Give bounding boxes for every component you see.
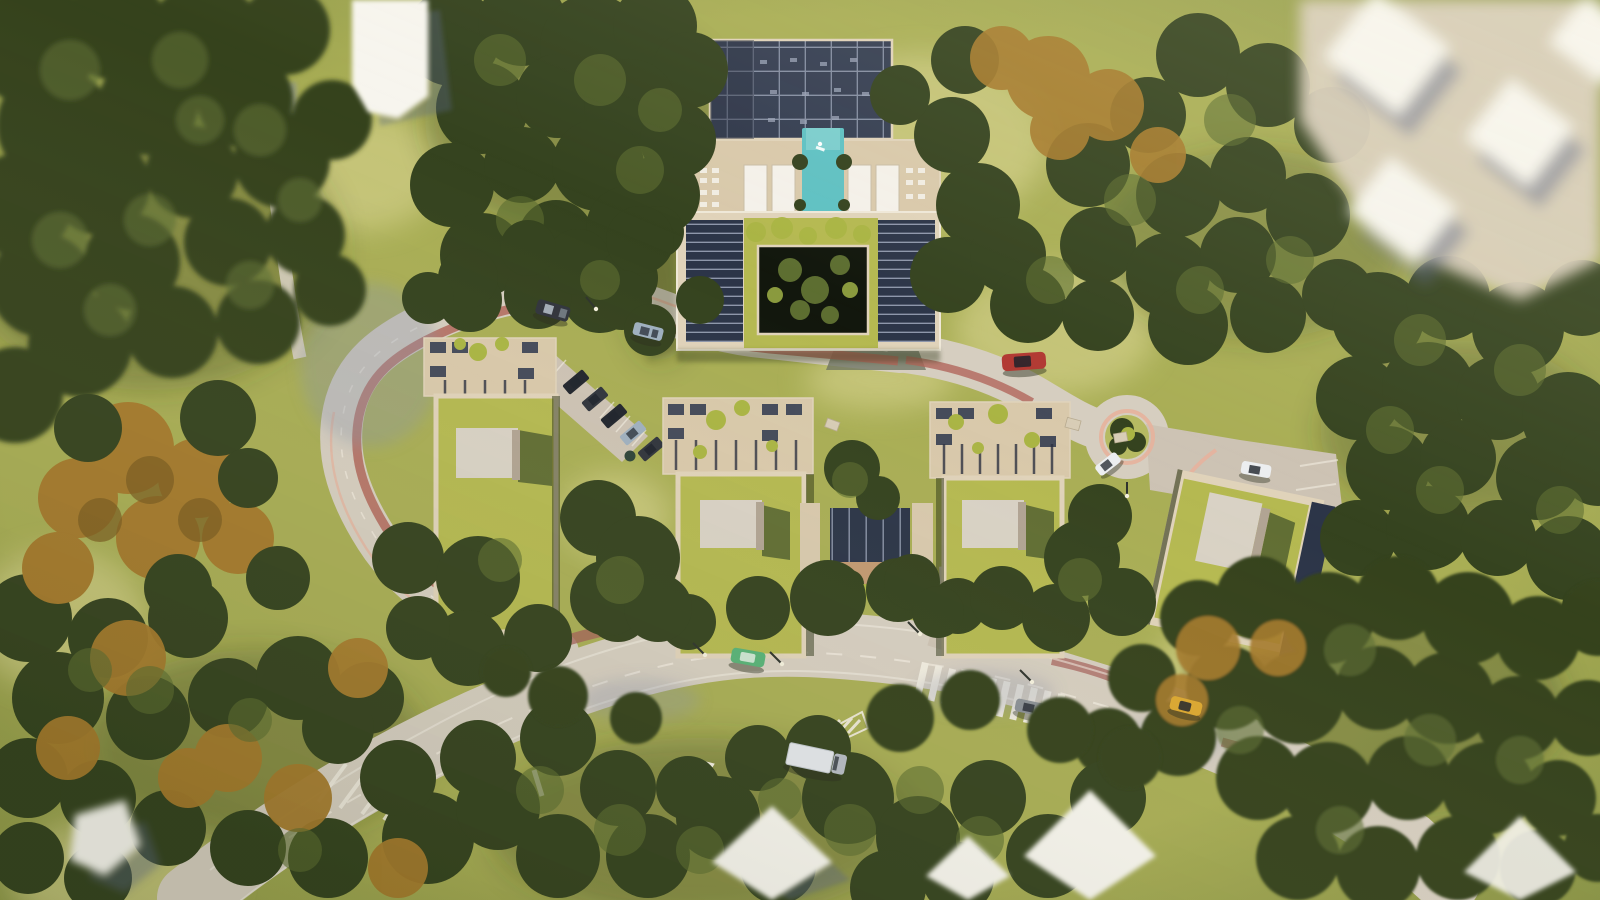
sunlight-overlay	[0, 0, 1600, 900]
aerial-render-stage	[0, 0, 1600, 900]
aerial-render-canvas	[0, 0, 1600, 900]
